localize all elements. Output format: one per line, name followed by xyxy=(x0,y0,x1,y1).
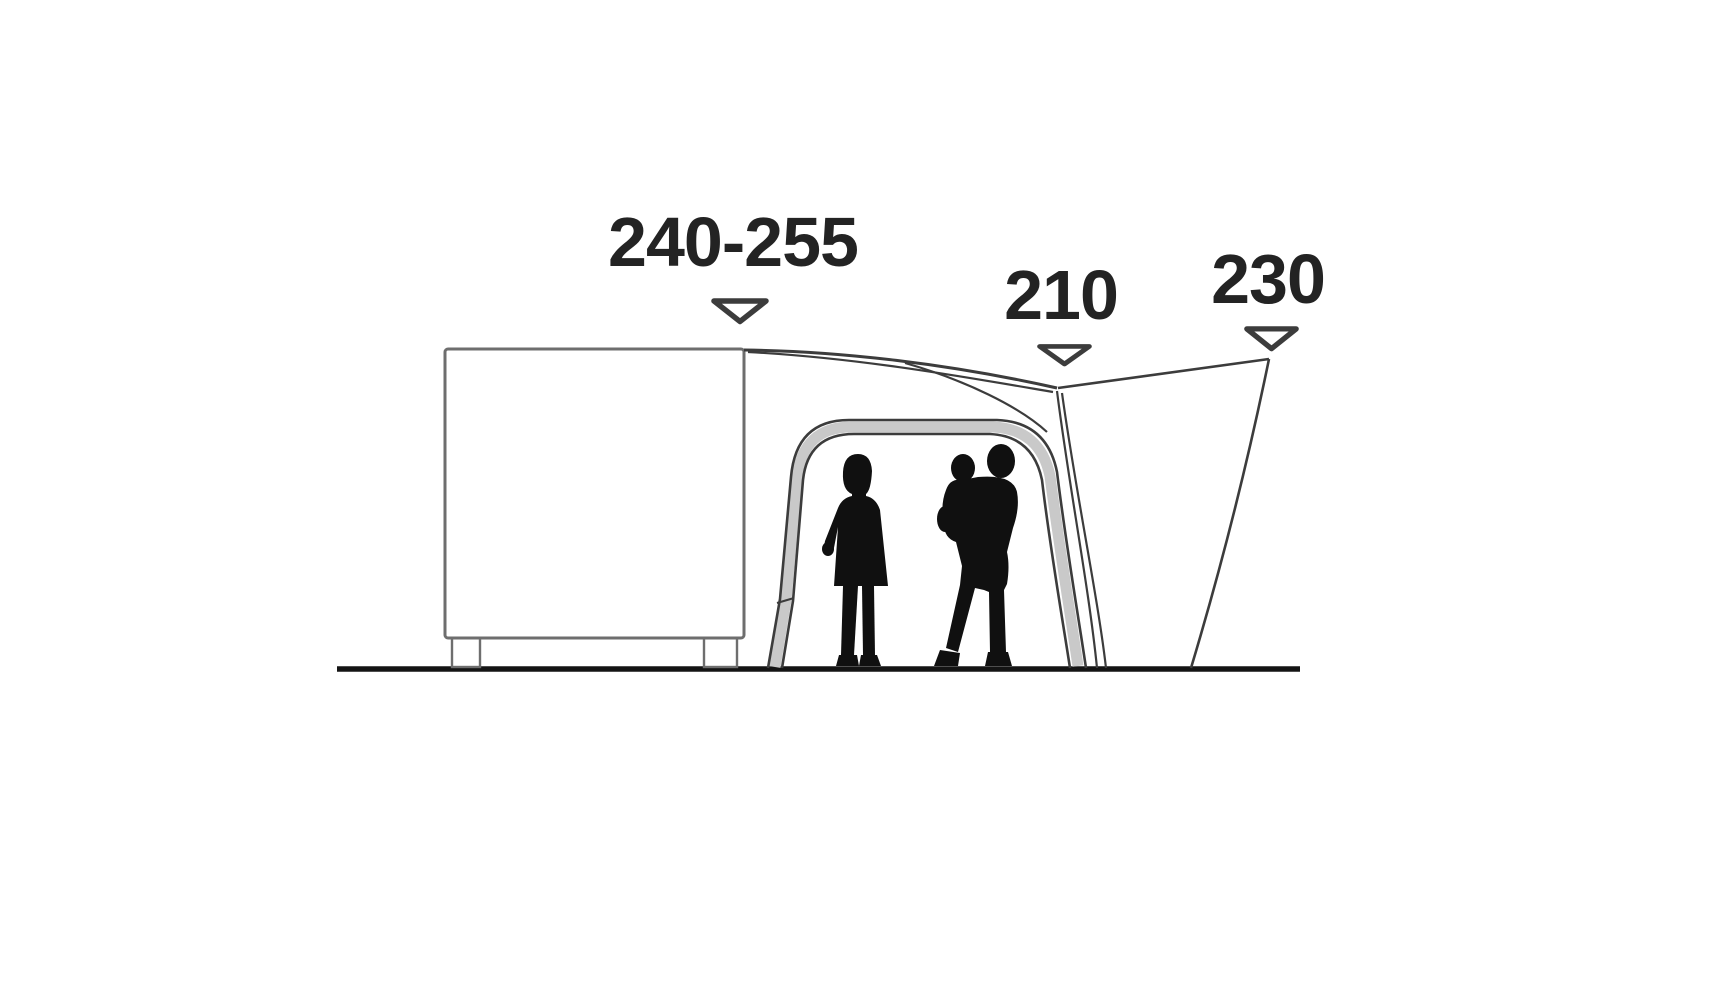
vehicle-body xyxy=(445,349,744,638)
person-back-leg xyxy=(841,586,858,655)
adult-front-foot xyxy=(934,650,960,666)
adult-with-child-silhouette xyxy=(934,444,1018,666)
person-head xyxy=(843,454,872,498)
vehicle-right-foot xyxy=(704,638,737,667)
person-body xyxy=(823,496,888,586)
vehicle-left-foot xyxy=(452,638,480,667)
awning-rear-edge-line xyxy=(1191,359,1269,668)
dimension-pointer-icon xyxy=(710,297,770,325)
awning-dimension-diagram: 240-255 210 230 xyxy=(0,0,1724,1000)
person-front-foot xyxy=(859,655,881,666)
adult-and-child-body xyxy=(942,477,1018,652)
child-head xyxy=(951,454,975,482)
person-front-leg xyxy=(862,586,875,655)
dimension-label-peak-height: 230 xyxy=(1211,244,1325,314)
dimension-pointer-icon xyxy=(1243,325,1300,352)
adult-back-foot xyxy=(985,652,1012,666)
awning-roof-seam-line xyxy=(748,352,1053,392)
people-silhouettes xyxy=(822,444,1018,666)
awning-side-view-drawing xyxy=(0,0,1724,1000)
person-back-foot xyxy=(836,655,859,666)
dimension-label-attachment-height: 240-255 xyxy=(608,207,858,277)
door-frame xyxy=(768,420,1086,668)
person-hand xyxy=(822,542,834,556)
adult-head xyxy=(987,444,1015,478)
dimension-label-door-height: 210 xyxy=(1004,260,1118,330)
door-frame-tube-fill xyxy=(775,427,1078,667)
dimension-pointer-icon xyxy=(1036,343,1093,367)
person-silhouette xyxy=(822,454,888,666)
vehicle-outline xyxy=(445,349,744,667)
